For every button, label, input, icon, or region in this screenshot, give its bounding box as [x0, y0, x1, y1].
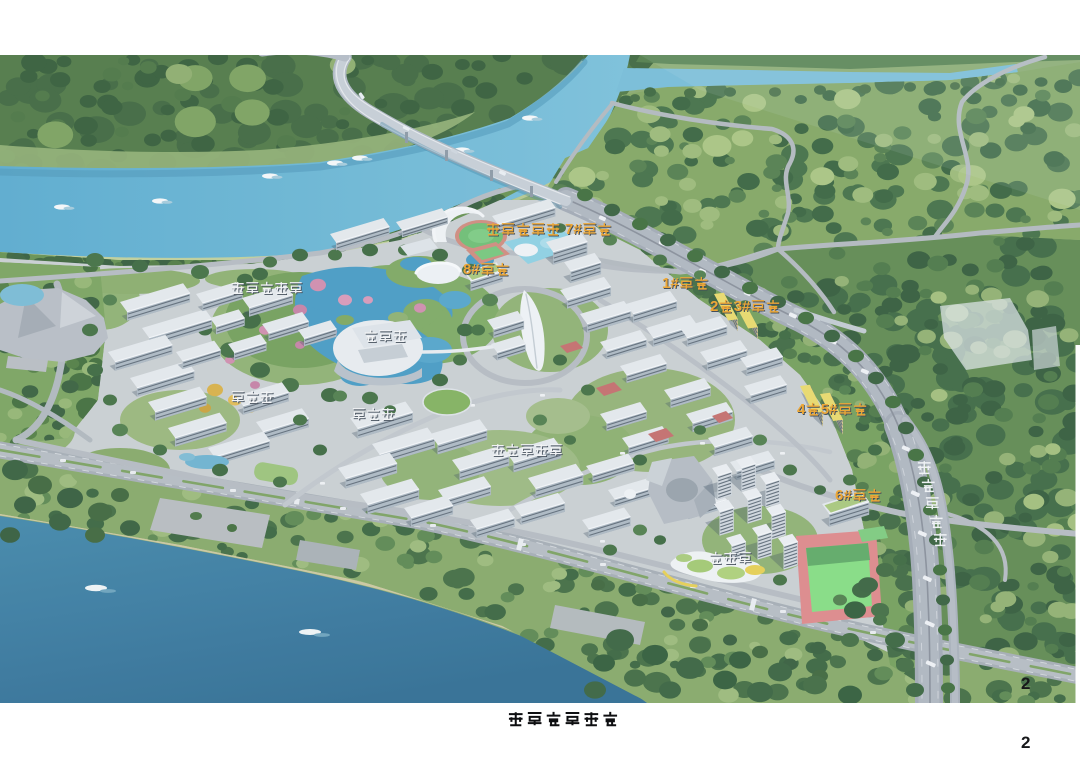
- svg-text:2: 2: [1021, 733, 1030, 752]
- svg-text:2: 2: [1021, 674, 1030, 693]
